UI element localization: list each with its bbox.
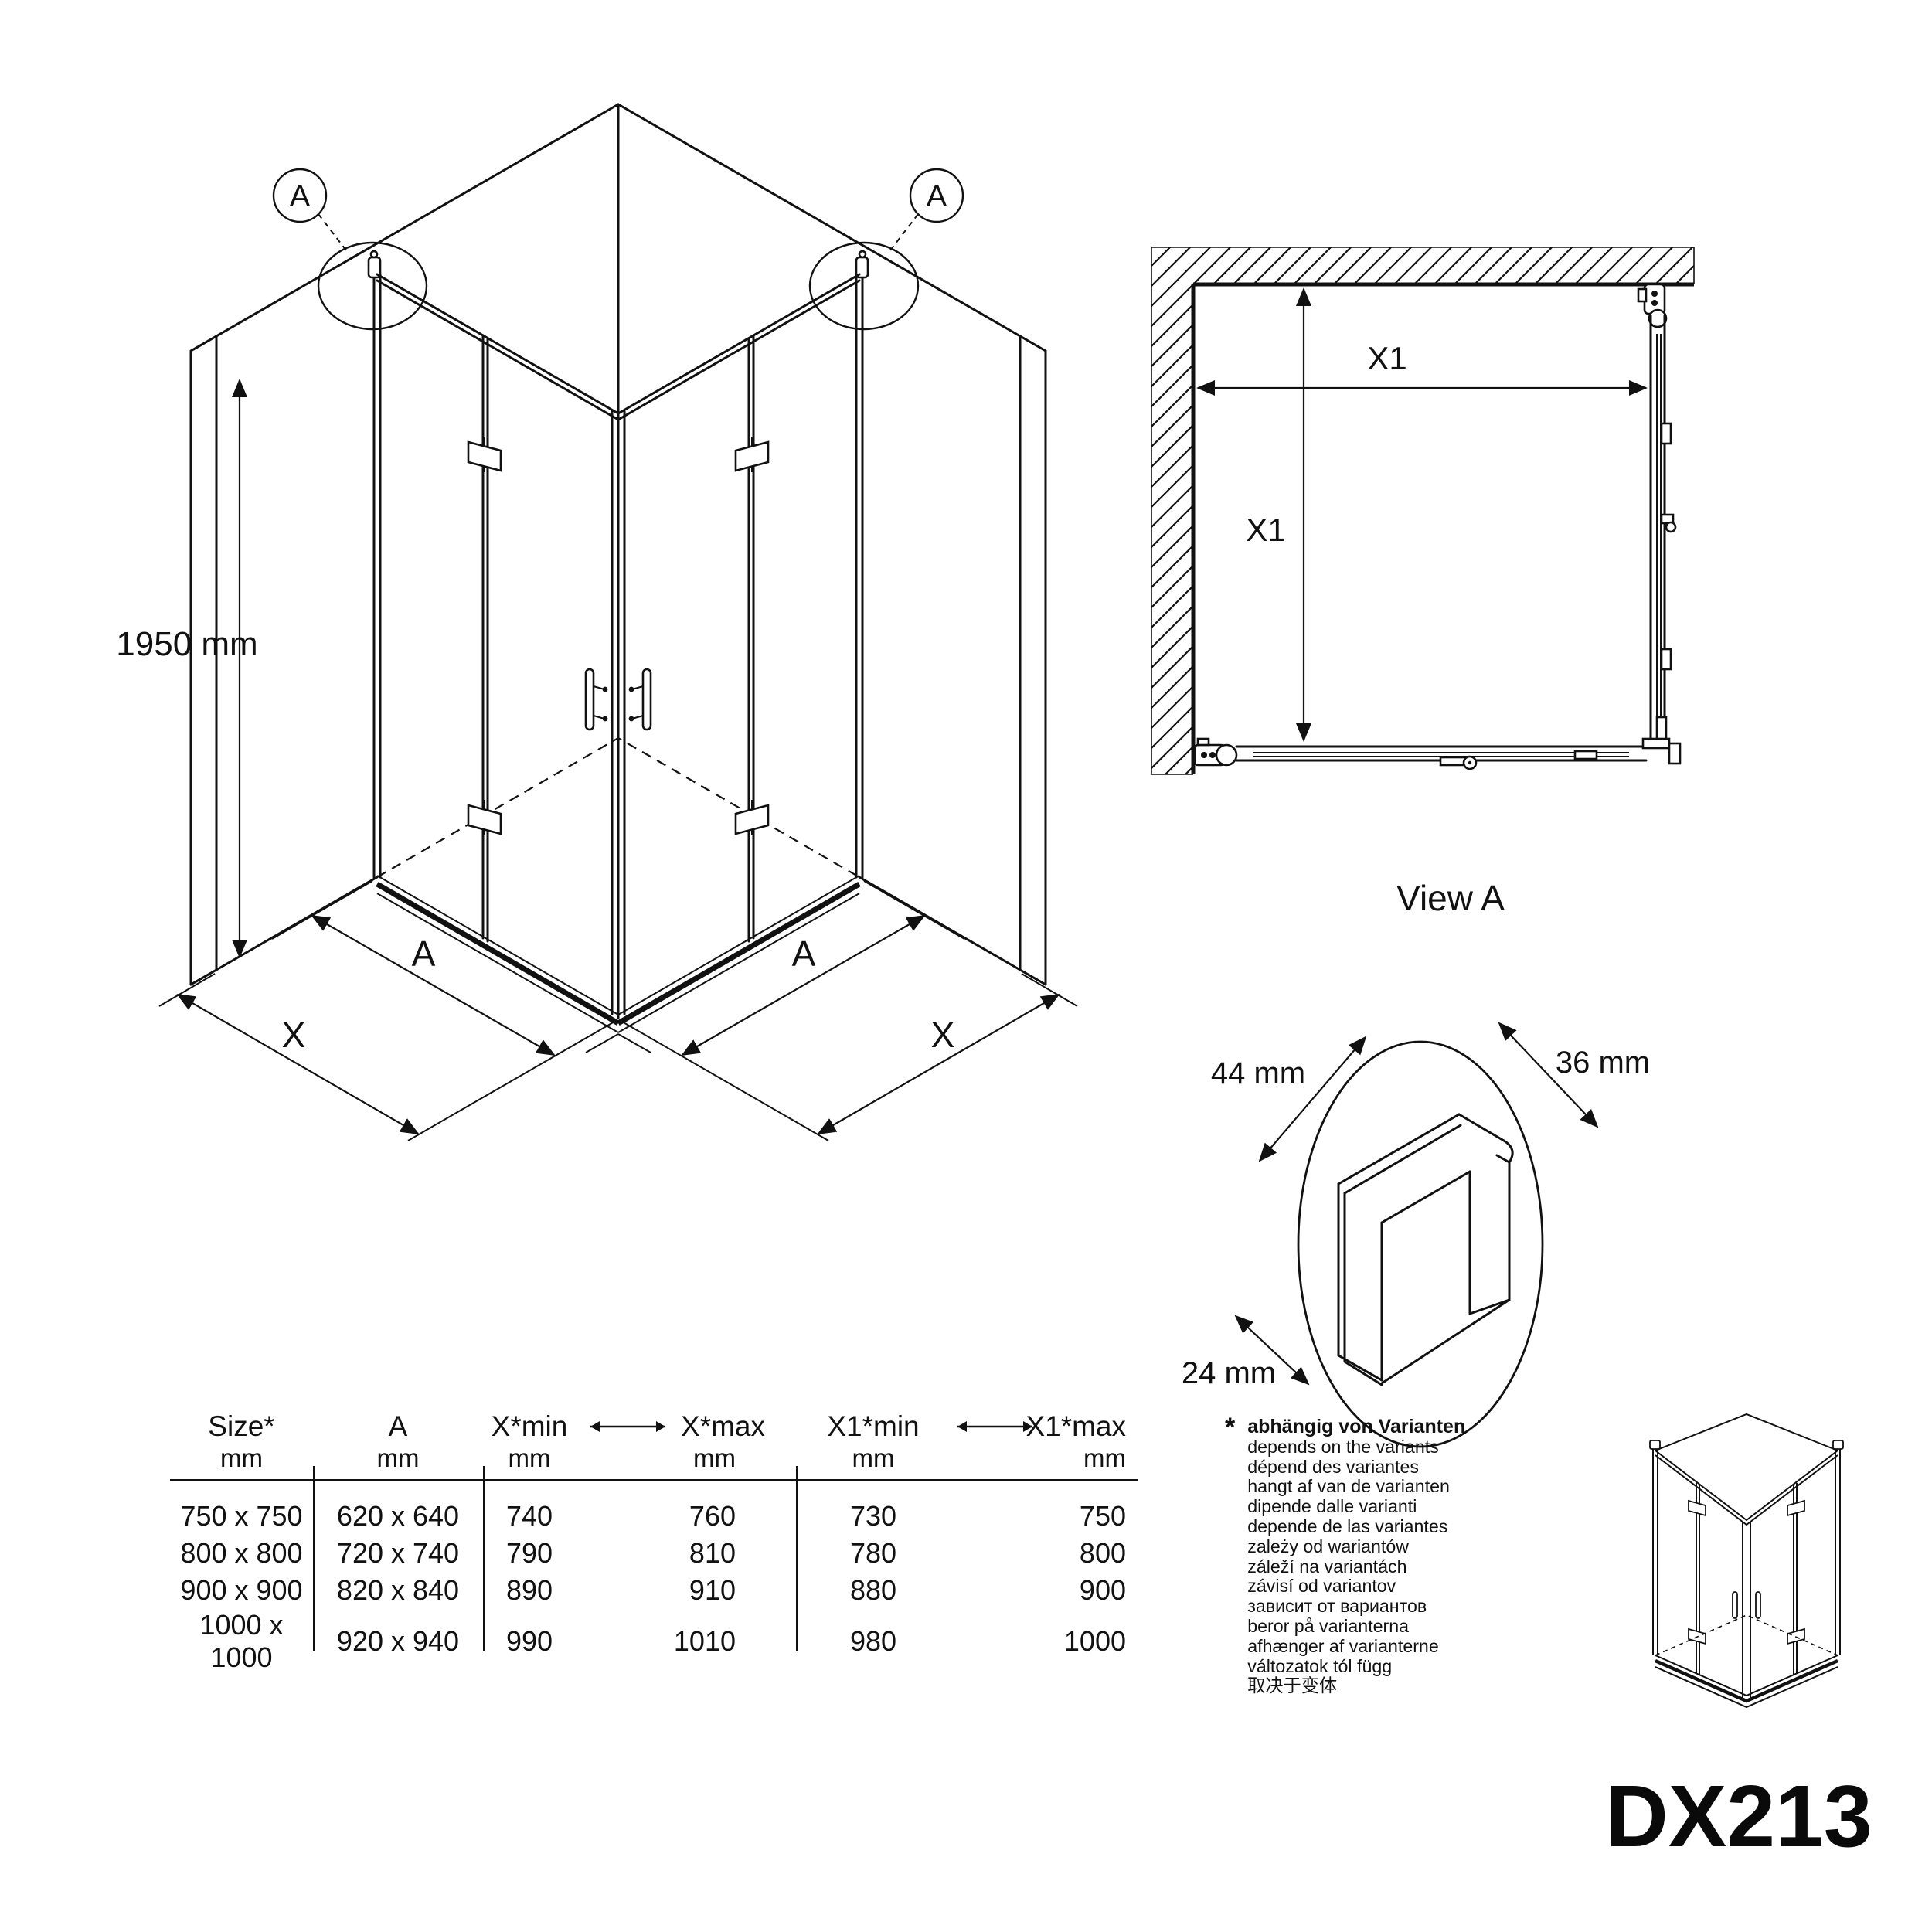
range-arrow-icon bbox=[947, 1417, 1043, 1436]
detail-circle bbox=[1298, 1042, 1543, 1447]
product-thumbnail bbox=[1634, 1400, 1859, 1717]
plan-view-drawing: X1 X1 View A bbox=[1121, 216, 1816, 943]
cell-a: 820 x 840 bbox=[313, 1574, 483, 1607]
detail-dim-24-label: 24 mm bbox=[1182, 1356, 1276, 1390]
col-header-size: Size* bbox=[170, 1410, 313, 1443]
variants-footnote: * abhängig von Varianten depends on the … bbox=[1225, 1417, 1465, 1696]
cell-size: 800 x 800 bbox=[170, 1537, 313, 1570]
cell-x1-min: 780 bbox=[796, 1537, 927, 1570]
plan-hinge-bottom bbox=[1440, 757, 1476, 769]
cell-x1-min: 980 bbox=[796, 1625, 927, 1658]
cell-x1-min: 880 bbox=[796, 1574, 927, 1607]
plan-dim-width-label: X1 bbox=[1367, 340, 1406, 376]
left-door-handle bbox=[586, 669, 607, 730]
plan-corner-hardware bbox=[1643, 717, 1680, 764]
detail-dimensions: 44 mm 36 mm 24 mm bbox=[1182, 1023, 1650, 1390]
unit-label: mm bbox=[576, 1444, 796, 1473]
footnote-lines: abhängig von Varianten depends on the va… bbox=[1247, 1417, 1465, 1696]
column-separator bbox=[313, 1466, 315, 1651]
footnote-translation: afhænger af varianterne bbox=[1247, 1637, 1465, 1657]
col-header-x1-min: X1*min bbox=[796, 1410, 927, 1443]
cell-size: 900 x 900 bbox=[170, 1574, 313, 1607]
height-dimension: 1950 mm bbox=[116, 380, 257, 957]
column-separator bbox=[483, 1466, 485, 1651]
footnote-translation: változatok tól függ bbox=[1247, 1657, 1465, 1677]
col-header-x-min: X*min bbox=[483, 1410, 576, 1443]
cell-x-min: 990 bbox=[483, 1625, 576, 1658]
left-fold-hinge-top bbox=[468, 442, 501, 471]
footnote-translation: dipende dalle varianti bbox=[1247, 1497, 1465, 1517]
profile-section bbox=[1338, 1114, 1512, 1385]
cell-x1-max: 800 bbox=[927, 1537, 1138, 1570]
cell-a: 720 x 740 bbox=[313, 1537, 483, 1570]
unit-label: mm bbox=[170, 1444, 313, 1473]
cell-x1-min: 730 bbox=[796, 1500, 927, 1532]
dim-a-left-label: A bbox=[412, 934, 436, 974]
footnote-translation: beror på varianterna bbox=[1247, 1617, 1465, 1637]
cell-x-max: 760 bbox=[576, 1500, 796, 1532]
cell-x-min: 740 bbox=[483, 1500, 576, 1532]
footnote-primary: abhängig von Varianten bbox=[1247, 1417, 1465, 1437]
cell-size: 1000 x 1000 bbox=[170, 1609, 313, 1674]
plan-view-title: View A bbox=[1396, 878, 1505, 918]
plan-right-assembly bbox=[1638, 284, 1675, 742]
right-door-assembly bbox=[618, 251, 868, 1032]
footnote-translation: hangt af van de varianten bbox=[1247, 1477, 1465, 1497]
panel-joint bbox=[1662, 423, 1671, 444]
asterisk-symbol: * bbox=[1225, 1417, 1235, 1696]
cell-x-max: 1010 bbox=[576, 1625, 796, 1658]
wall-bracket-top bbox=[1645, 284, 1665, 314]
footnote-translation: depende de las variantes bbox=[1247, 1517, 1465, 1537]
dim-x-right-label: X bbox=[931, 1015, 955, 1055]
right-fold-hinge-bottom bbox=[736, 805, 768, 834]
table-unit-row: mm mm mm mm mm mm bbox=[170, 1444, 1138, 1473]
panel-joint bbox=[1662, 649, 1671, 669]
footnote-translation: 取决于变体 bbox=[1247, 1676, 1465, 1696]
cell-x-min: 790 bbox=[483, 1537, 576, 1570]
left-door-assembly bbox=[369, 251, 618, 1032]
footnote-translation: závisí od variantov bbox=[1247, 1577, 1465, 1597]
cell-x-min: 890 bbox=[483, 1574, 576, 1607]
footnote-translation: záleží na variantách bbox=[1247, 1557, 1465, 1577]
unit-label: mm bbox=[313, 1444, 483, 1473]
footnote-translation: зависит от вариантов bbox=[1247, 1597, 1465, 1617]
panel-joint bbox=[1575, 751, 1597, 759]
datasheet-page: A A 1950 mm A X A X bbox=[0, 0, 1932, 1932]
cell-a: 920 x 940 bbox=[313, 1625, 483, 1658]
footnote-translation: zależy od wariantów bbox=[1247, 1537, 1465, 1557]
range-arrow-icon bbox=[580, 1417, 676, 1436]
right-door-handle bbox=[629, 669, 651, 730]
thumbnail-enclosure bbox=[1650, 1414, 1843, 1707]
isometric-drawing: A A 1950 mm A X A X bbox=[100, 31, 1121, 1244]
cell-x-max: 910 bbox=[576, 1574, 796, 1607]
unit-label: mm bbox=[927, 1444, 1138, 1473]
table-row: 900 x 900 820 x 840 890 910 880 900 bbox=[170, 1572, 1138, 1609]
cell-size: 750 x 750 bbox=[170, 1500, 313, 1532]
dim-a-right-label: A bbox=[792, 934, 816, 974]
detail-dim-36-label: 36 mm bbox=[1556, 1046, 1650, 1080]
detail-callout-right: A bbox=[810, 169, 963, 329]
plan-dim-depth-label: X1 bbox=[1246, 512, 1285, 548]
callout-label-right: A bbox=[927, 179, 947, 213]
cell-a: 620 x 640 bbox=[313, 1500, 483, 1532]
footnote-translation: dépend des variantes bbox=[1247, 1458, 1465, 1478]
plan-bottom-assembly bbox=[1195, 717, 1680, 769]
detail-callout-left: A bbox=[274, 169, 427, 329]
unit-label: mm bbox=[796, 1444, 927, 1473]
right-fold-hinge-top bbox=[736, 442, 768, 471]
unit-label: mm bbox=[483, 1444, 576, 1473]
column-separator bbox=[796, 1466, 798, 1651]
cell-x1-max: 750 bbox=[927, 1500, 1138, 1532]
plan-walls bbox=[1151, 247, 1694, 774]
table-row: 1000 x 1000 920 x 940 990 1010 980 1000 bbox=[170, 1609, 1138, 1646]
col-header-a: A bbox=[313, 1410, 483, 1443]
detail-dim-44-label: 44 mm bbox=[1211, 1056, 1305, 1090]
plan-dimensions: X1 X1 bbox=[1198, 289, 1646, 740]
table-row: 800 x 800 720 x 740 790 810 780 800 bbox=[170, 1535, 1138, 1572]
callout-label-left: A bbox=[290, 179, 311, 213]
footnote-translation: depends on the variants bbox=[1247, 1437, 1465, 1458]
cell-x-max: 810 bbox=[576, 1537, 796, 1570]
center-corner-stiles bbox=[586, 411, 651, 1053]
height-dimension-label: 1950 mm bbox=[116, 625, 257, 663]
table-body: 750 x 750 620 x 640 740 760 730 750 800 … bbox=[170, 1481, 1138, 1646]
detail-view-drawing: 44 mm 36 mm 24 mm bbox=[1121, 951, 1893, 1430]
dim-x-left-label: X bbox=[282, 1015, 306, 1055]
cell-x1-max: 1000 bbox=[927, 1625, 1138, 1658]
model-code: DX213 bbox=[1569, 1766, 1909, 1866]
table-row: 750 x 750 620 x 640 740 760 730 750 bbox=[170, 1498, 1138, 1535]
size-table: Size* A X*min X*max X1*min X1*max mm mm … bbox=[170, 1410, 1138, 1646]
cell-x1-max: 900 bbox=[927, 1574, 1138, 1607]
